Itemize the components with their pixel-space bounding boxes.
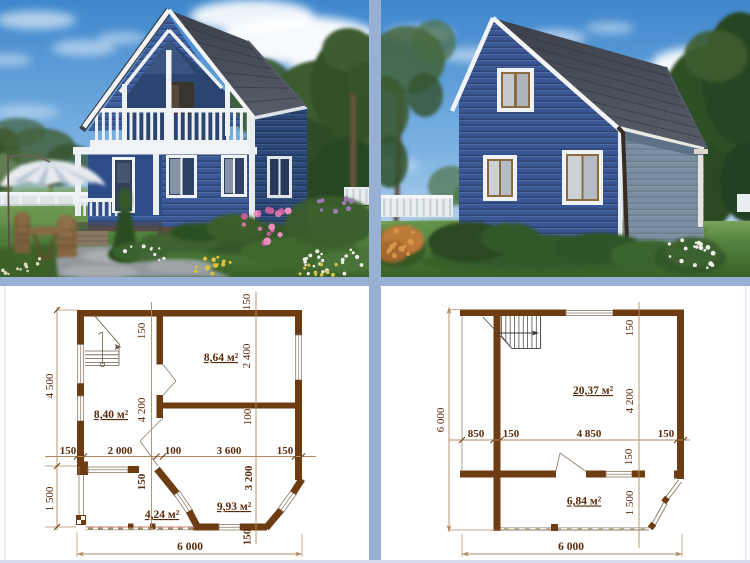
svg-text:2 000: 2 000: [108, 445, 133, 457]
svg-text:6 000: 6 000: [177, 541, 203, 553]
svg-text:100: 100: [242, 408, 254, 425]
svg-text:8,64 м²: 8,64 м²: [204, 352, 239, 364]
svg-text:150: 150: [277, 445, 294, 457]
svg-text:4 500: 4 500: [44, 373, 56, 398]
svg-text:150: 150: [242, 528, 254, 545]
svg-text:20,37 м²: 20,37 м²: [573, 385, 614, 397]
svg-text:3 200: 3 200: [243, 465, 255, 490]
svg-text:150: 150: [658, 428, 675, 440]
svg-text:6,84 м²: 6,84 м²: [567, 496, 602, 508]
svg-text:150: 150: [624, 319, 636, 336]
svg-text:6 000: 6 000: [558, 541, 584, 553]
svg-text:850: 850: [468, 428, 485, 440]
svg-text:8,40 м²: 8,40 м²: [94, 409, 129, 421]
svg-text:9,93 м²: 9,93 м²: [217, 501, 252, 513]
svg-text:4,24 м²: 4,24 м²: [145, 509, 180, 521]
svg-text:4 850: 4 850: [577, 428, 602, 440]
svg-text:100: 100: [165, 445, 182, 457]
svg-text:3 600: 3 600: [217, 445, 242, 457]
svg-text:150: 150: [60, 445, 77, 457]
svg-text:1 500: 1 500: [44, 486, 56, 511]
svg-text:150: 150: [136, 322, 148, 339]
svg-text:6 000: 6 000: [435, 407, 447, 432]
svg-text:4 200: 4 200: [624, 388, 636, 413]
svg-text:150: 150: [241, 293, 253, 310]
svg-text:150: 150: [623, 448, 635, 465]
svg-text:4 200: 4 200: [136, 397, 148, 422]
svg-text:1 500: 1 500: [624, 490, 636, 515]
svg-text:150: 150: [136, 473, 148, 490]
svg-text:150: 150: [503, 428, 520, 440]
svg-text:2 400: 2 400: [241, 343, 253, 368]
